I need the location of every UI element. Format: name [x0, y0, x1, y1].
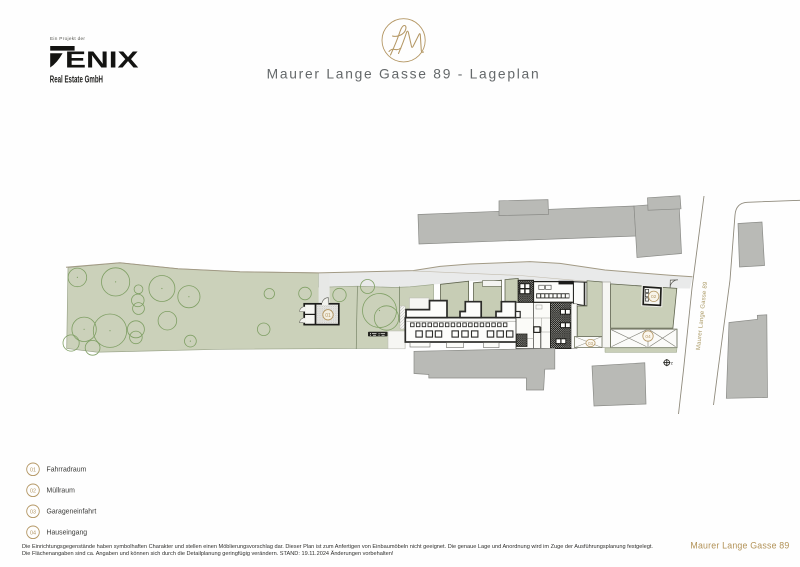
svg-text:02: 02 — [651, 294, 657, 300]
svg-text:03: 03 — [588, 341, 594, 346]
svg-text:Garageneinfahrt: Garageneinfahrt — [47, 509, 97, 516]
svg-text:01: 01 — [325, 313, 331, 319]
svg-text:04: 04 — [645, 334, 651, 340]
svg-text:Fahrradraum: Fahrradraum — [47, 467, 87, 474]
svg-text:02: 02 — [30, 488, 36, 494]
svg-text:Maurer Lange Gasse 89: Maurer Lange Gasse 89 — [690, 541, 789, 551]
svg-text:Die Flächenangaben sind ca. An: Die Flächenangaben sind ca. Angaben und … — [22, 550, 394, 557]
svg-text:Maurer Lange Gasse 89 - Lagepl: Maurer Lange Gasse 89 - Lageplan — [267, 67, 541, 82]
svg-text:ENIX: ENIX — [65, 47, 139, 73]
svg-text:04: 04 — [30, 530, 36, 536]
svg-text:03: 03 — [30, 509, 36, 515]
svg-text:z: z — [671, 360, 673, 365]
svg-text:Die Einrichtungsgegenstände ha: Die Einrichtungsgegenstände haben symbol… — [22, 544, 653, 550]
svg-text:Müllraum: Müllraum — [47, 488, 76, 495]
svg-text:Ein Projekt der: Ein Projekt der — [50, 36, 85, 41]
svg-text:01: 01 — [30, 467, 36, 473]
svg-text:Real Estate GmbH: Real Estate GmbH — [50, 74, 103, 85]
svg-text:Hauseingang: Hauseingang — [47, 530, 88, 537]
